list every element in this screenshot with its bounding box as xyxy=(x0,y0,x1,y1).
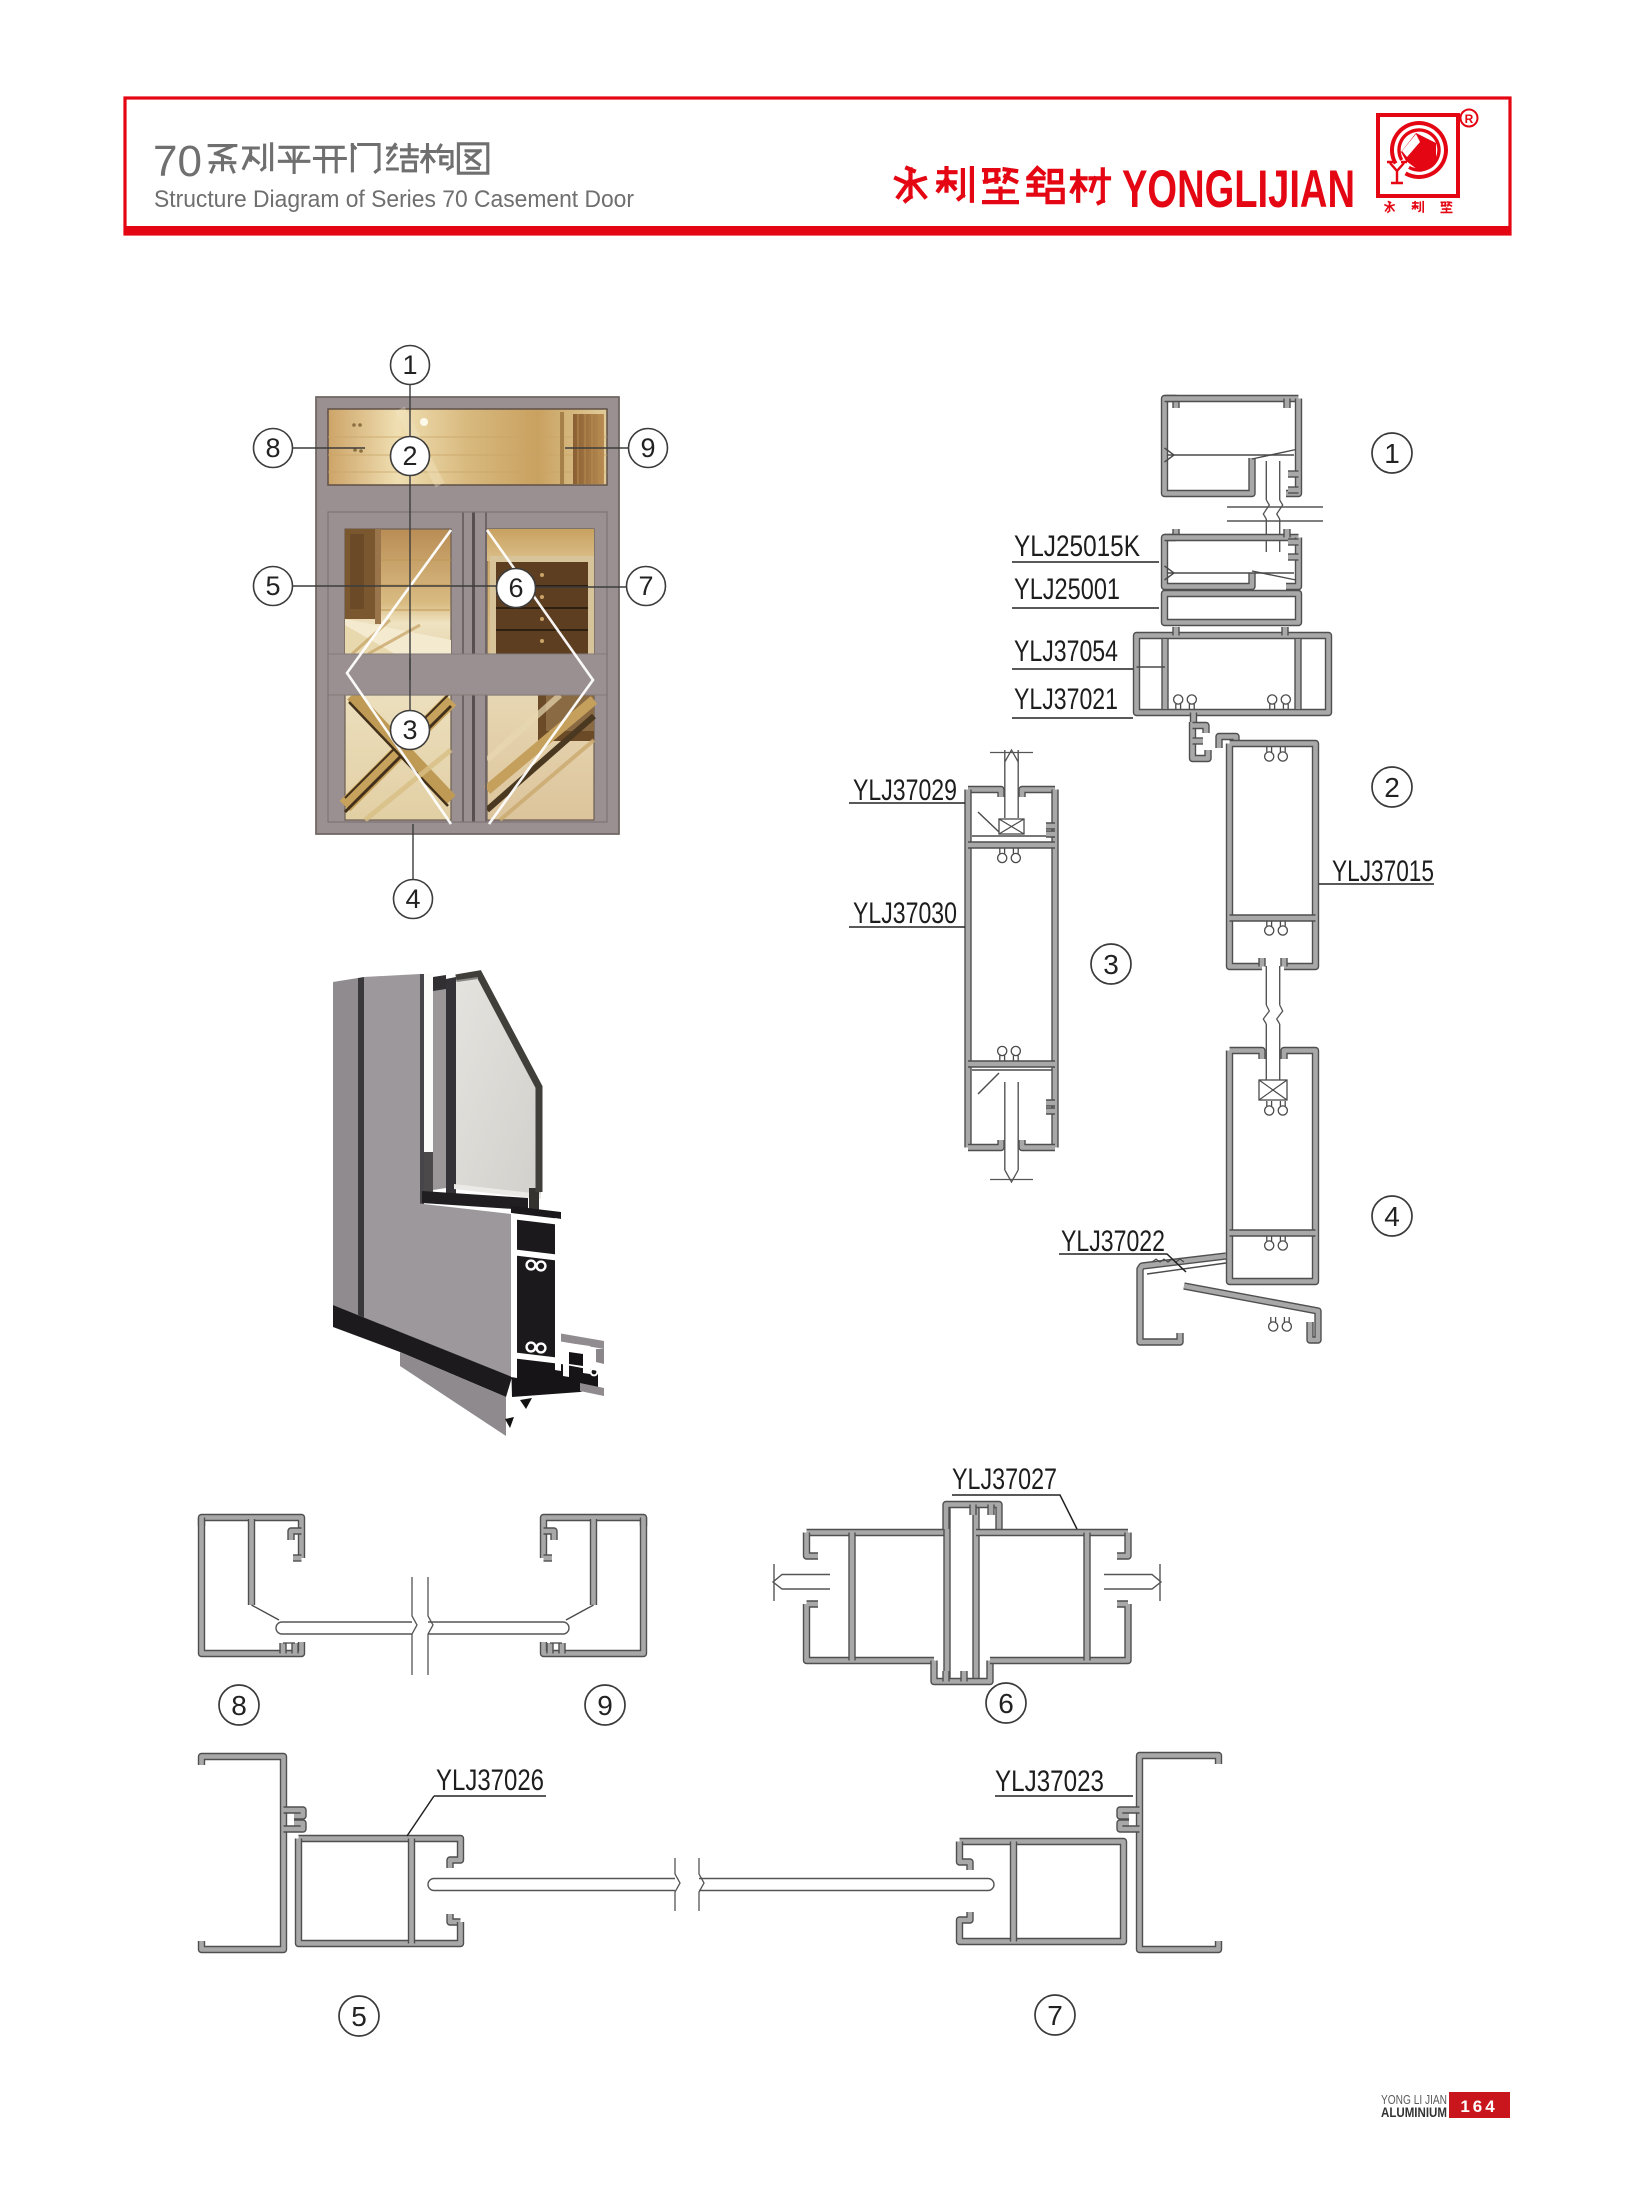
svg-text:YLJ37027: YLJ37027 xyxy=(952,1463,1057,1496)
svg-text:4: 4 xyxy=(405,884,420,914)
svg-text:8: 8 xyxy=(231,1690,247,1721)
svg-text:YLJ37022: YLJ37022 xyxy=(1061,1225,1165,1258)
svg-text:5: 5 xyxy=(265,571,280,601)
svg-text:6: 6 xyxy=(508,573,523,603)
svg-text:1: 1 xyxy=(402,350,417,380)
svg-text:3: 3 xyxy=(402,715,417,745)
svg-text:3: 3 xyxy=(1103,949,1119,980)
svg-text:YLJ37015: YLJ37015 xyxy=(1332,855,1434,888)
svg-text:1: 1 xyxy=(1384,438,1400,469)
svg-text:ALUMINIUM: ALUMINIUM xyxy=(1381,2105,1447,2120)
svg-text:YLJ37026: YLJ37026 xyxy=(436,1764,544,1797)
svg-text:70: 70 xyxy=(153,137,202,186)
svg-text:8: 8 xyxy=(265,433,280,463)
svg-text:YONGLIJIAN: YONGLIJIAN xyxy=(1122,160,1355,219)
svg-text:9: 9 xyxy=(640,433,655,463)
svg-text:164: 164 xyxy=(1460,2097,1497,2116)
svg-text:YLJ37021: YLJ37021 xyxy=(1014,683,1118,716)
svg-text:6: 6 xyxy=(998,1688,1014,1719)
svg-text:5: 5 xyxy=(351,2001,367,2032)
svg-text:9: 9 xyxy=(597,1690,613,1721)
svg-text:YLJ25015K: YLJ25015K xyxy=(1014,530,1140,563)
svg-text:7: 7 xyxy=(1047,2000,1063,2031)
svg-text:YLJ37029: YLJ37029 xyxy=(853,774,957,807)
svg-text:R: R xyxy=(1465,112,1474,126)
svg-text:2: 2 xyxy=(1384,772,1400,803)
svg-text:YLJ25001: YLJ25001 xyxy=(1014,573,1120,606)
svg-text:YLJ37023: YLJ37023 xyxy=(995,1765,1104,1798)
svg-text:4: 4 xyxy=(1384,1201,1400,1232)
svg-text:YLJ37054: YLJ37054 xyxy=(1014,635,1118,668)
svg-text:Structure Diagram of Series 70: Structure Diagram of Series 70 Casement … xyxy=(154,186,634,213)
svg-text:7: 7 xyxy=(638,571,653,601)
svg-text:YLJ37030: YLJ37030 xyxy=(853,897,957,930)
svg-text:2: 2 xyxy=(402,441,417,471)
